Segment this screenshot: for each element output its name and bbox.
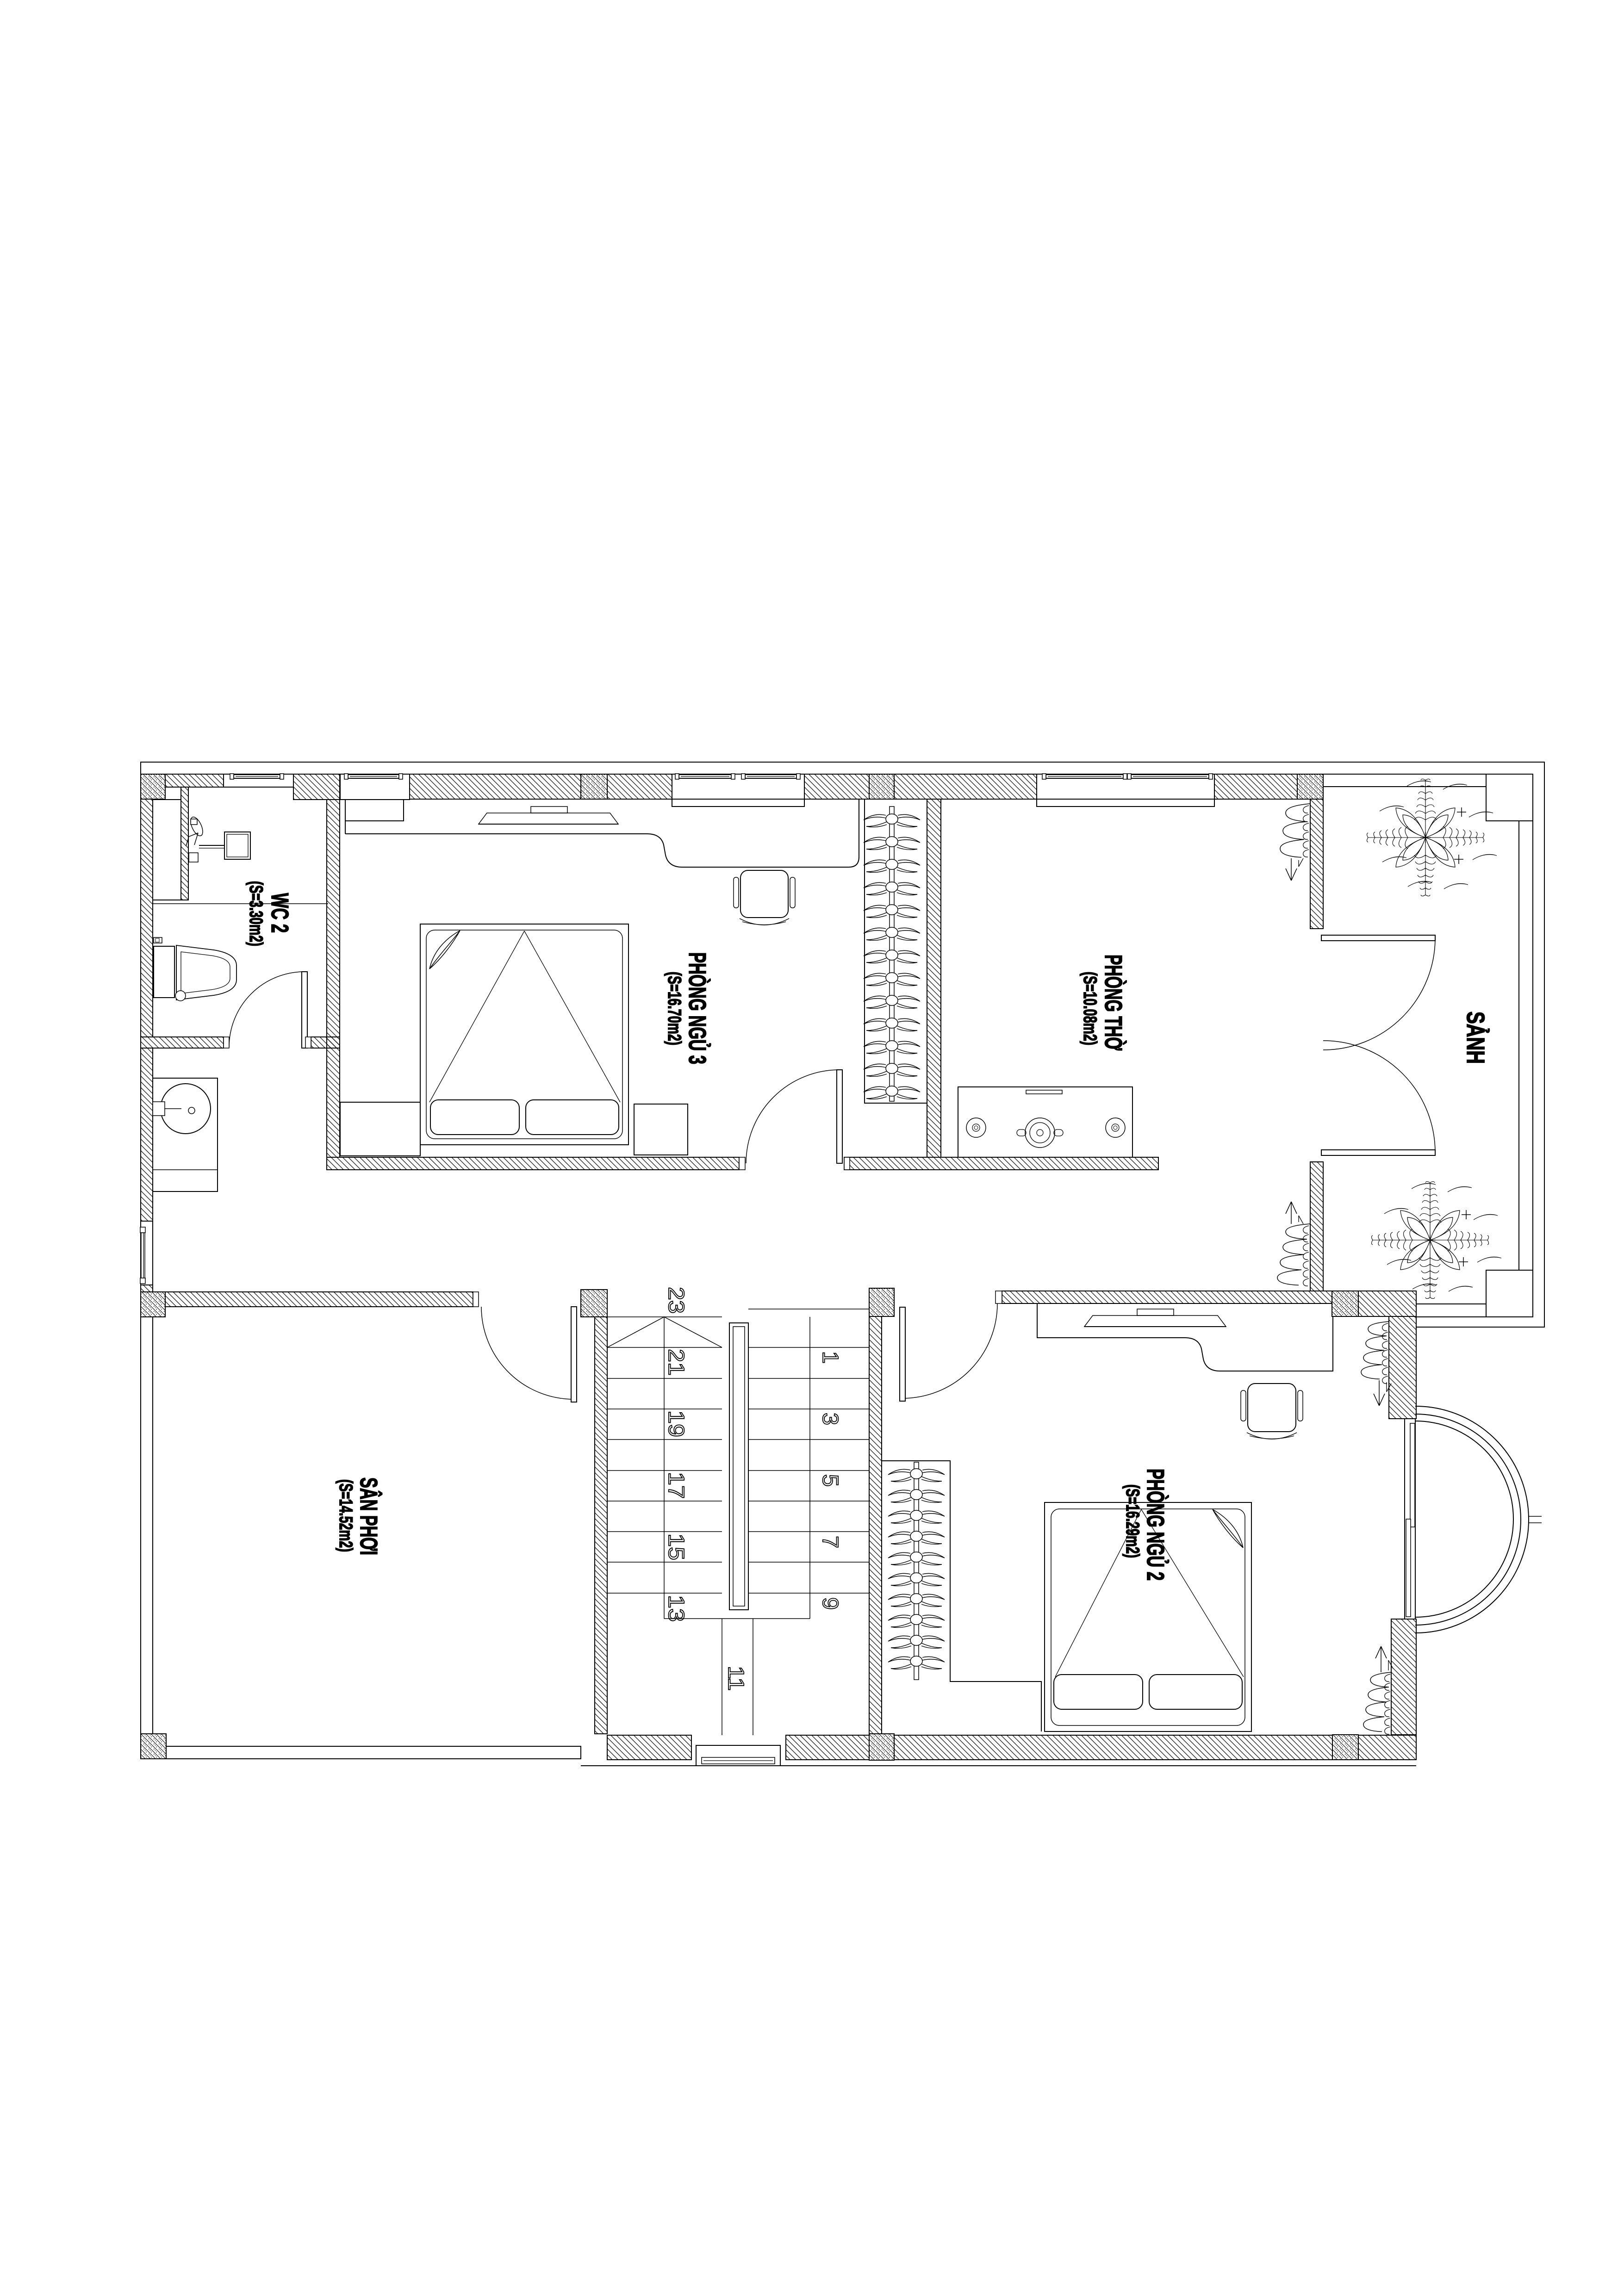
svg-text:13: 13 [664,1595,688,1622]
svg-text:1: 1 [818,1351,842,1364]
svg-text:SÂN PHƠI: SÂN PHƠI [355,1477,382,1555]
svg-text:PHÒNG NGỦ 3: PHÒNG NGỦ 3 [684,952,711,1064]
svg-text:(S=16.70m2): (S=16.70m2) [664,972,684,1045]
svg-text:11: 11 [723,1666,748,1691]
svg-text:PHÒNG NGỦ 2: PHÒNG NGỦ 2 [1142,1469,1169,1581]
svg-text:(S=16.29m2): (S=16.29m2) [1122,1484,1143,1558]
svg-text:23: 23 [664,1287,688,1314]
svg-text:SẢNH: SẢNH [1462,1011,1489,1064]
svg-text:7: 7 [818,1536,842,1548]
svg-text:15: 15 [664,1533,688,1560]
svg-text:(S=10.08m2): (S=10.08m2) [1080,972,1100,1045]
svg-text:9: 9 [818,1597,842,1610]
svg-text:(S=3.30m2): (S=3.30m2) [246,881,266,946]
svg-text:17: 17 [664,1472,688,1499]
svg-text:19: 19 [664,1410,688,1437]
svg-text:PHÒNG THỜ: PHÒNG THỜ [1100,955,1126,1050]
svg-text:5: 5 [818,1474,842,1487]
svg-text:(S=14.52m2): (S=14.52m2) [336,1479,356,1552]
svg-text:WC 2: WC 2 [266,893,293,933]
svg-text:21: 21 [664,1349,688,1376]
svg-text:3: 3 [818,1413,842,1425]
